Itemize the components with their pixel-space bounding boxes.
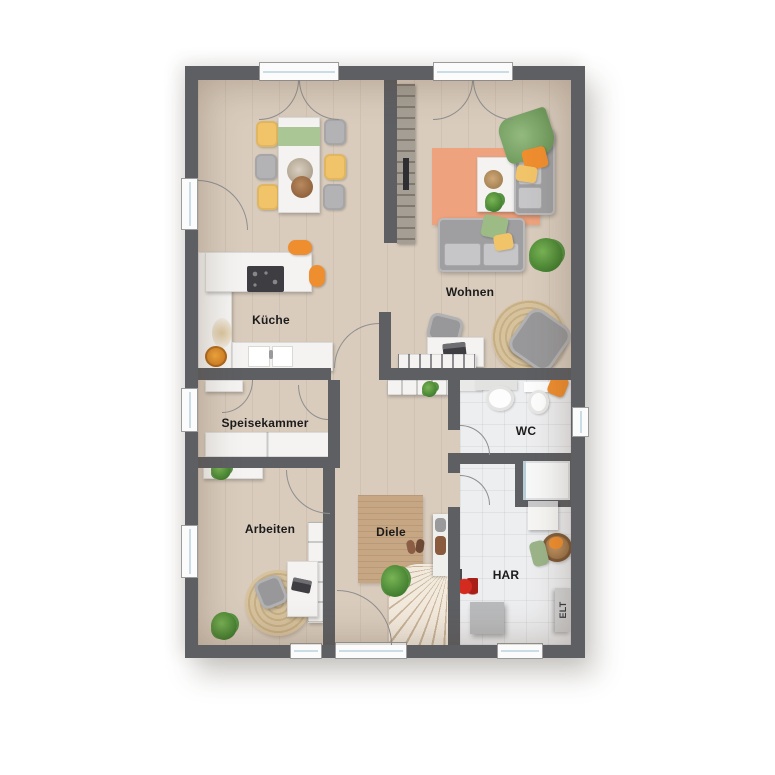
washing-machine <box>528 501 558 530</box>
room-label-elt: ELT <box>558 602 568 619</box>
floor-plant <box>529 238 563 272</box>
building-outline: Küche Wohnen Speisekammer Arbeiten Diele… <box>185 66 585 658</box>
bar-stool <box>288 240 312 255</box>
room-label-wc: WC <box>516 424 536 438</box>
wall-mid-left <box>198 368 331 380</box>
room-label-kueche: Küche <box>252 313 290 327</box>
window-french-door <box>433 62 513 81</box>
table-plant <box>485 192 503 212</box>
decor-tray <box>484 170 503 189</box>
wall-mid-right <box>379 368 571 380</box>
sofa-cushion <box>518 187 542 209</box>
office-plant <box>211 612 237 640</box>
hallway-plant <box>381 565 409 597</box>
wall-pantry-right <box>328 380 340 467</box>
cabinet-plant <box>422 381 437 397</box>
wall-outer-top <box>185 66 585 80</box>
bookshelf-slot <box>403 158 409 190</box>
room-label-wohnen: Wohnen <box>446 285 494 299</box>
dining-chair-yellow <box>257 184 279 210</box>
window-door-kitchen <box>181 178 198 230</box>
storage-box <box>470 602 504 634</box>
dining-chair-gray <box>255 154 277 180</box>
dining-chair-gray <box>324 119 346 145</box>
dining-chair-yellow <box>324 154 346 180</box>
washbasin <box>486 386 514 411</box>
table-runner <box>278 127 320 146</box>
bar-stool <box>309 265 325 287</box>
cooktop <box>247 266 284 292</box>
room-label-har: HAR <box>493 568 520 582</box>
wall-divider-upper <box>384 80 397 243</box>
hanging-jacket <box>435 518 446 532</box>
pantry-shelf-bottom <box>205 432 330 457</box>
dining-chair-gray <box>323 184 345 210</box>
dining-chair-yellow <box>256 121 278 147</box>
window-har <box>497 643 543 659</box>
room-label-speisekammer: Speisekammer <box>221 416 308 430</box>
window-pantry <box>181 388 198 432</box>
window-office <box>181 525 198 578</box>
kitchen-sink <box>248 346 270 367</box>
wall-hall-right-a <box>448 380 460 430</box>
yellow-pillow <box>515 164 538 183</box>
kitchen-sink-drainer <box>272 346 293 367</box>
dried-plant-decor <box>212 318 232 348</box>
wall-hall-right-c <box>448 507 460 645</box>
fruit-bowl <box>205 346 227 367</box>
wall-outer-right <box>571 66 585 658</box>
shower-glass <box>523 461 526 500</box>
kitchen-faucet <box>269 350 273 359</box>
sofa-cushion <box>444 243 481 266</box>
vacuum-cleaner <box>457 578 478 595</box>
window-wc <box>572 407 589 437</box>
decor-plate <box>291 176 313 198</box>
floor-plan-image: Küche Wohnen Speisekammer Arbeiten Diele… <box>0 0 775 775</box>
yellow-pillow <box>493 232 514 251</box>
shoe-cabinet <box>387 380 448 395</box>
hanging-jacket <box>435 536 446 555</box>
toilet-bowl <box>528 390 549 414</box>
shower-tray <box>523 461 570 500</box>
wall-pantry-bottom <box>198 457 340 468</box>
room-label-arbeiten: Arbeiten <box>245 522 295 536</box>
room-label-diele: Diele <box>376 525 406 539</box>
window-office-south <box>290 643 322 659</box>
window-french-door <box>259 62 339 81</box>
